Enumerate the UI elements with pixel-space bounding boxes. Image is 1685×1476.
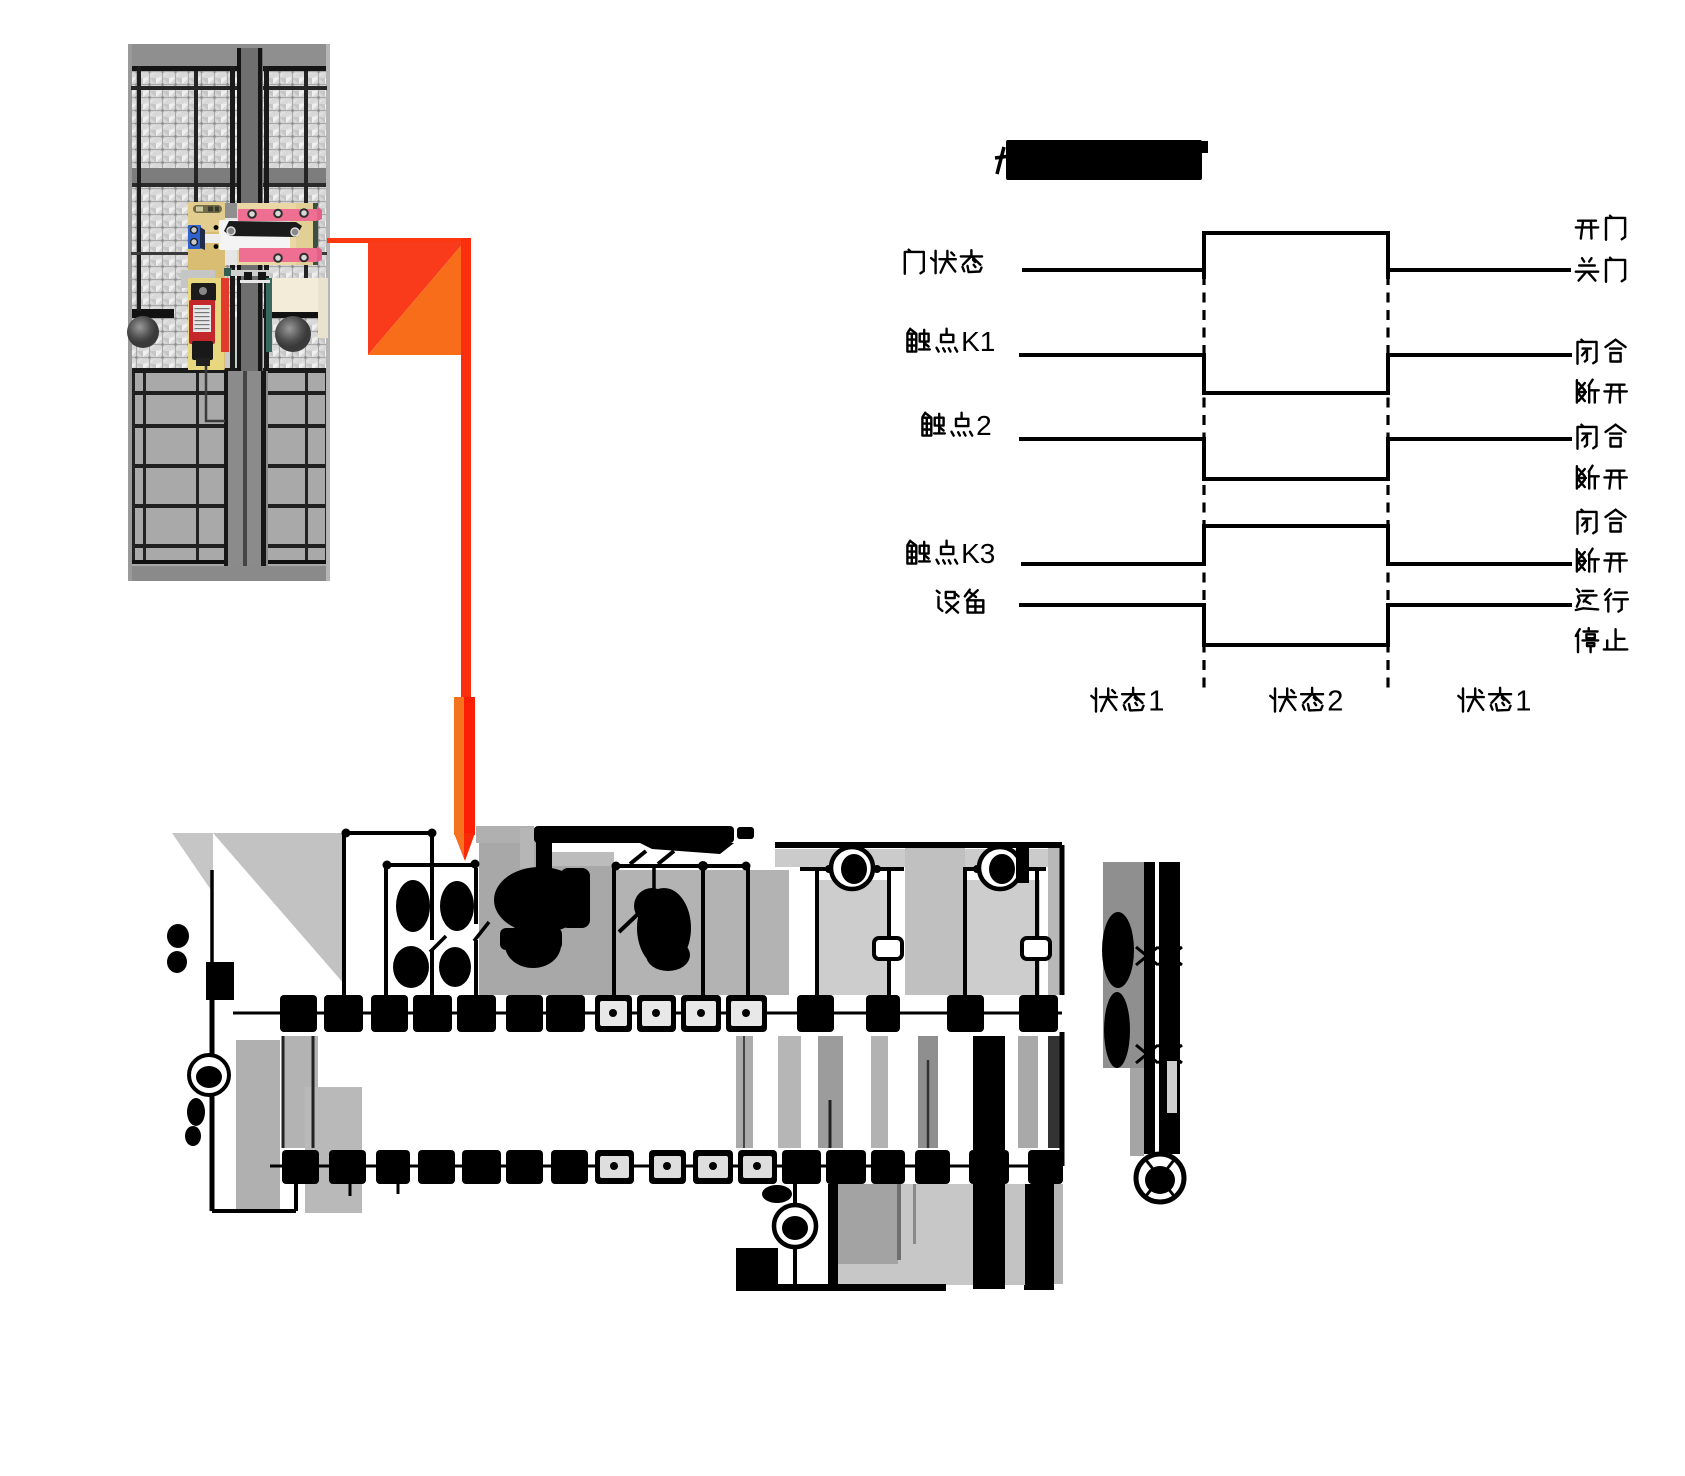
svg-text:1: 1 [1148,685,1164,717]
svg-text:K1: K1 [961,326,995,357]
svg-text:1: 1 [1515,685,1531,717]
svg-text:2: 2 [976,410,992,441]
svg-text:K3: K3 [961,538,995,569]
svg-text:2: 2 [1327,685,1343,717]
